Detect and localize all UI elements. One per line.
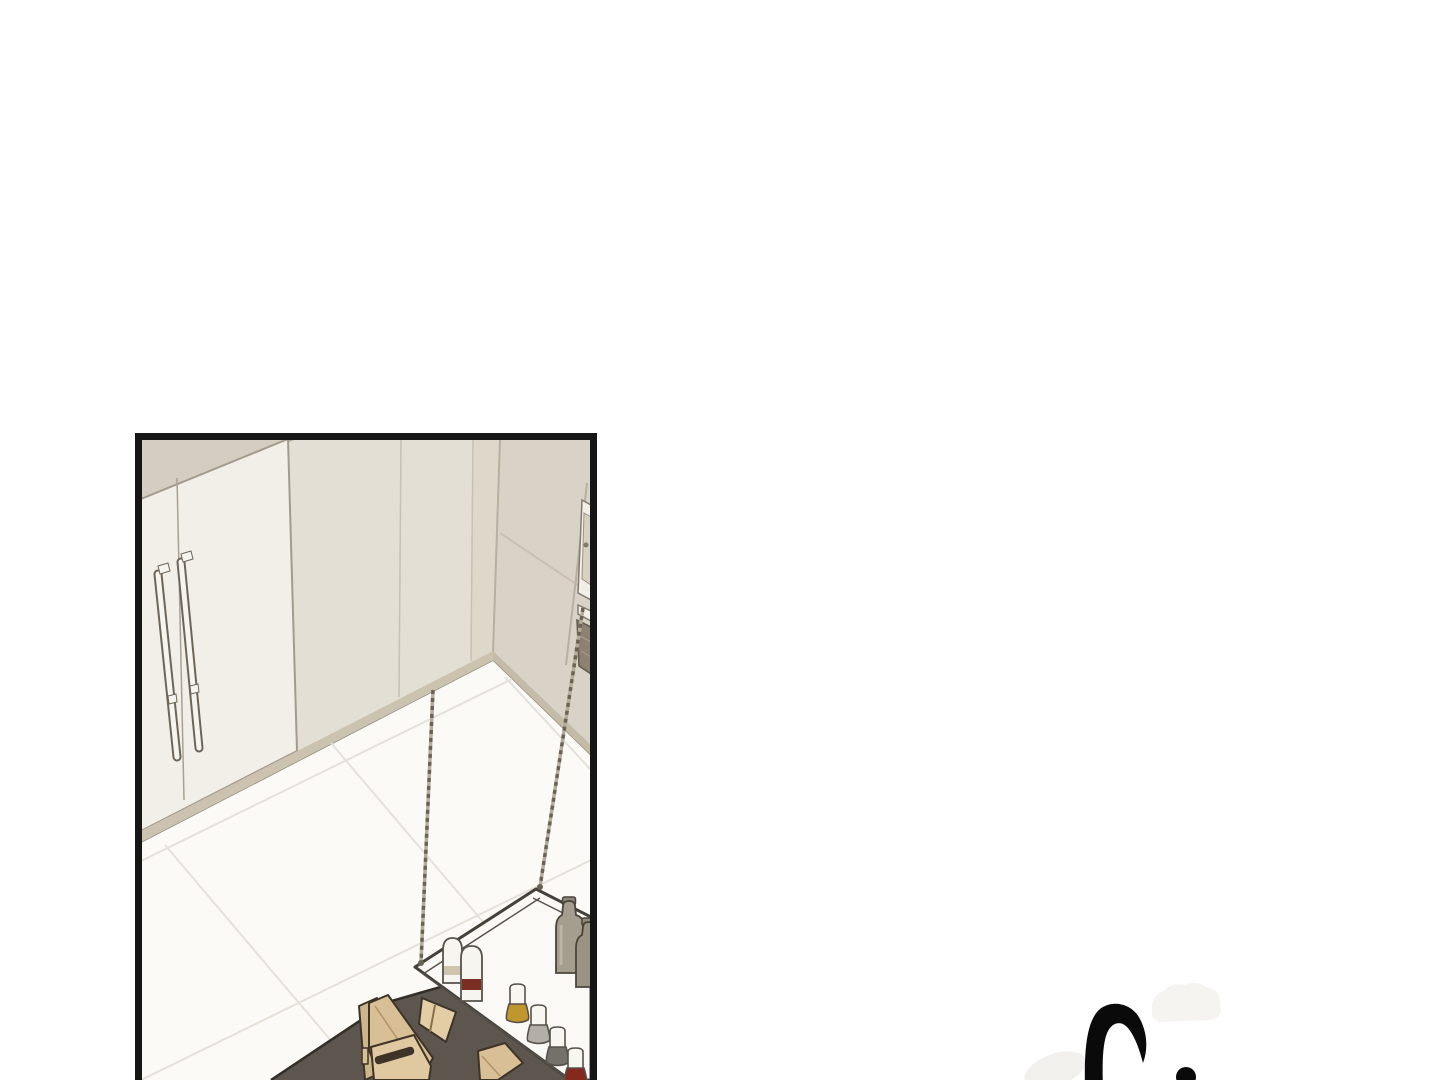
sfx-echo-blob-1 <box>1152 983 1221 1022</box>
spice-jar-red <box>564 1048 586 1080</box>
sfx-echo-blob-2 <box>1019 1044 1090 1080</box>
handle-bracket <box>168 694 177 704</box>
oven-upper-inner <box>582 513 591 585</box>
oven-knob <box>584 543 589 548</box>
sfx-brush-stroke <box>1085 1004 1146 1080</box>
spice-jar-gray <box>527 1005 549 1044</box>
white-canister-1 <box>443 938 462 983</box>
spice-jar-darkgray <box>546 1027 568 1066</box>
white-canister-2 <box>461 946 482 1001</box>
kitchen-panel-illustration <box>0 0 1440 1080</box>
page <box>0 0 1440 1080</box>
rod-anchor <box>537 884 543 890</box>
handle-bracket <box>190 684 199 694</box>
rack-leg <box>362 1048 368 1064</box>
spice-jar-gold <box>506 984 528 1023</box>
panel-interior <box>141 439 605 1080</box>
sfx-dot <box>1176 1067 1196 1080</box>
rod-anchor <box>418 960 424 966</box>
